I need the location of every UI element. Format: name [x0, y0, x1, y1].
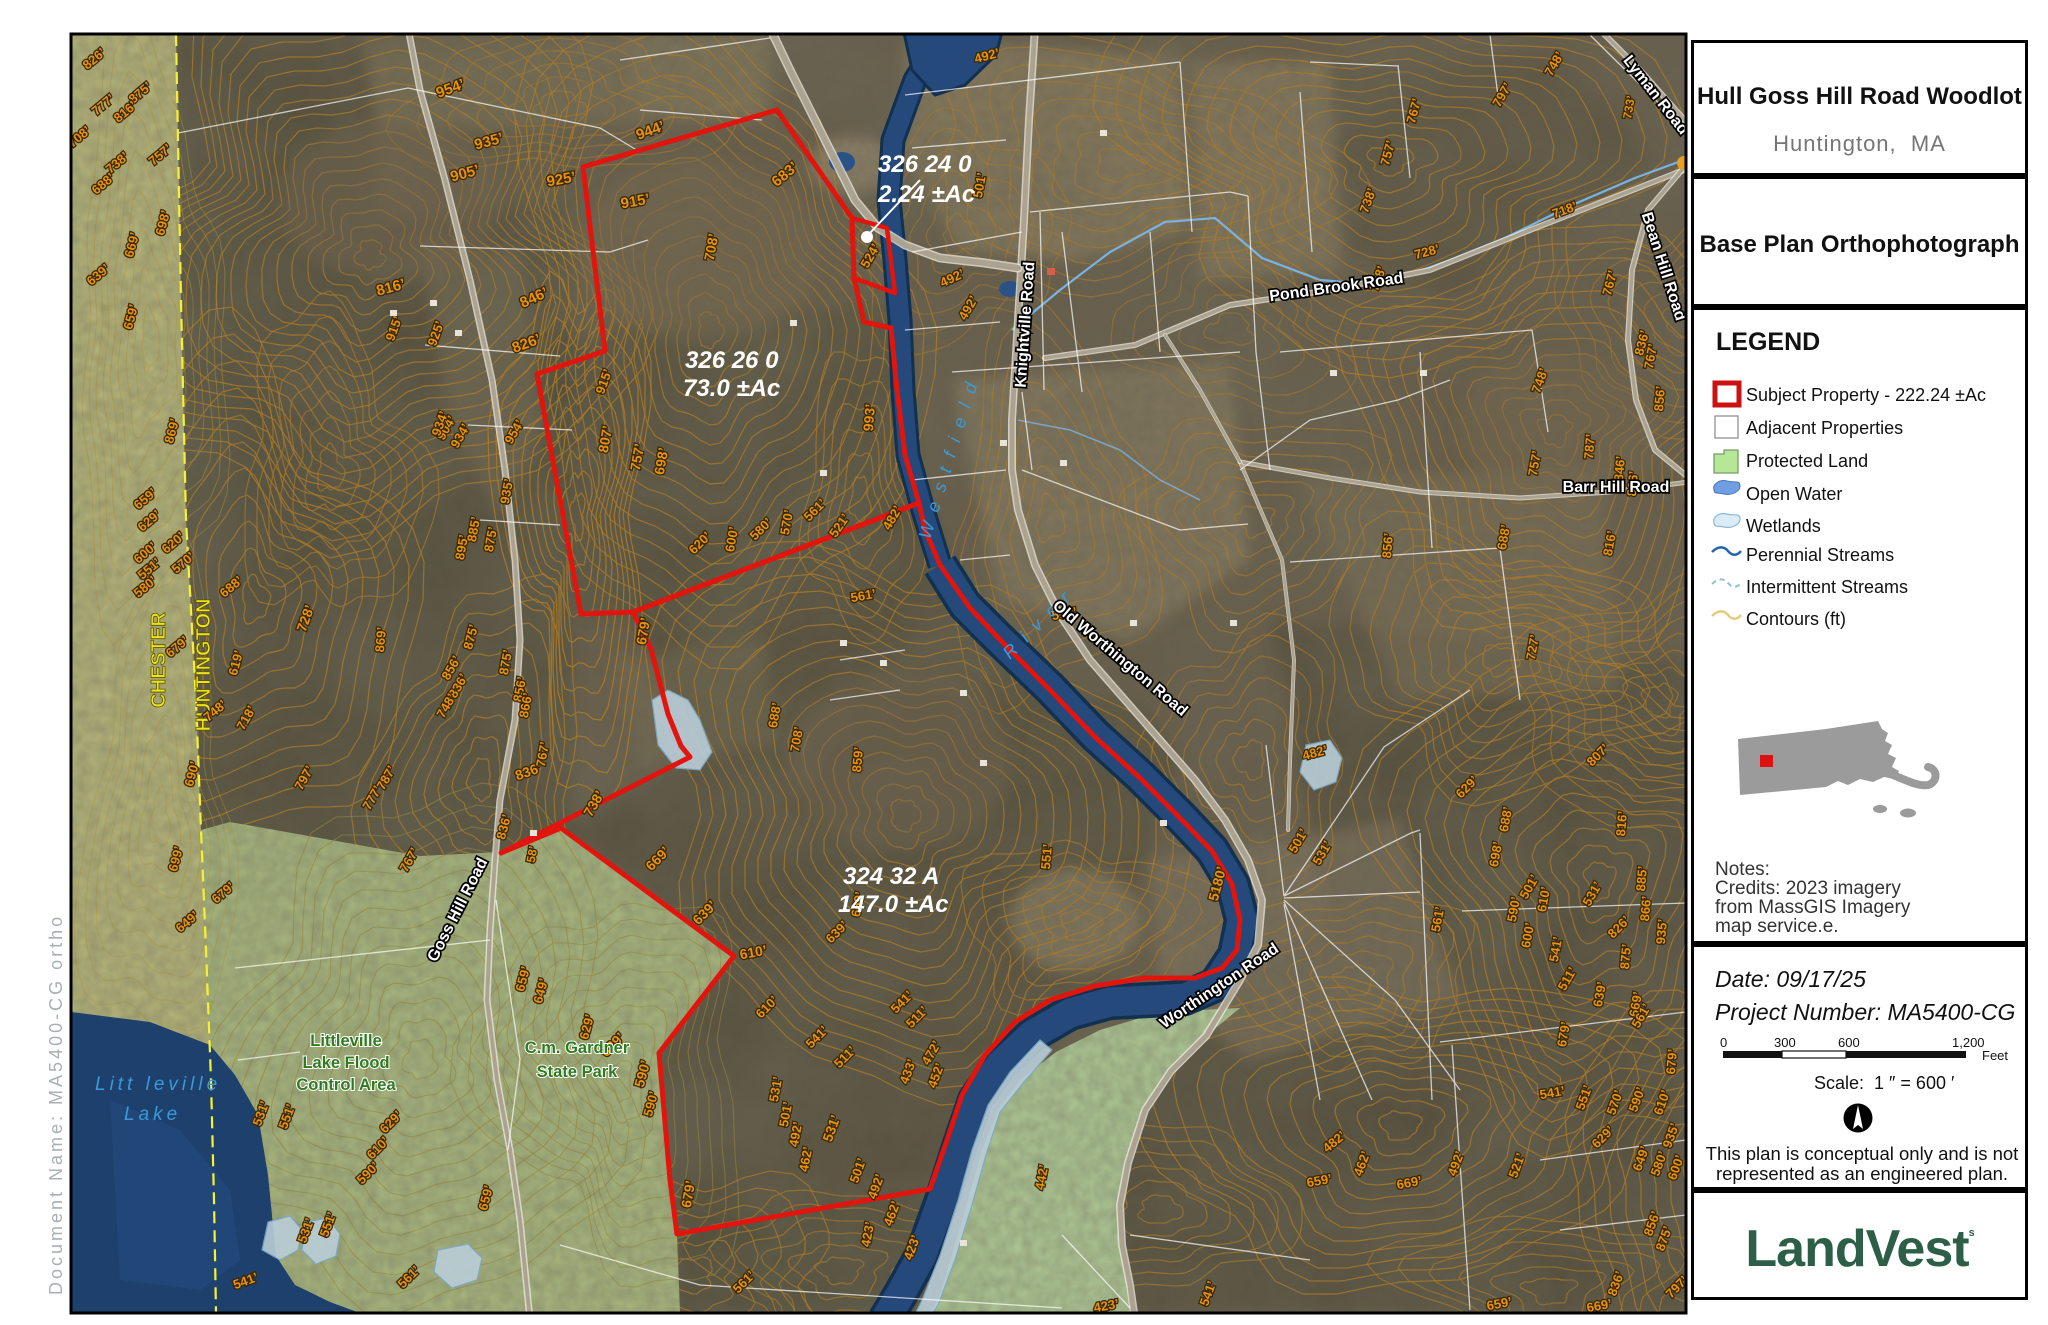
svg-text:859’: 859’: [849, 746, 866, 773]
svg-text:Notes:: Notes:: [1715, 859, 1770, 880]
svg-text:856’: 856’: [1651, 385, 1668, 412]
svg-text:Intermittent Streams: Intermittent Streams: [1746, 577, 1908, 597]
svg-text:816’: 816’: [1613, 810, 1630, 837]
svg-text:Perennial Streams: Perennial Streams: [1746, 545, 1894, 565]
svg-text:679’: 679’: [1663, 1048, 1680, 1075]
svg-text:551’: 551’: [1038, 843, 1055, 870]
svg-text:Protected Land: Protected Land: [1746, 451, 1868, 471]
svg-text:147.0 ±Ac: 147.0 ±Ac: [838, 891, 949, 918]
svg-text:Litt leville: Litt leville: [95, 1074, 221, 1095]
svg-text:C.m. Gardner: C.m. Gardner: [525, 1039, 630, 1057]
svg-text:Wetlands: Wetlands: [1746, 516, 1821, 536]
svg-text:0: 0: [1720, 1035, 1727, 1050]
svg-text:Date: 09/17/25: Date: 09/17/25: [1715, 966, 1866, 992]
svg-text:Subject Property - 222.24 ±Ac: Subject Property - 222.24 ±Ac: [1746, 385, 1986, 405]
svg-text:Open Water: Open Water: [1746, 484, 1842, 504]
svg-text:600: 600: [1838, 1035, 1860, 1050]
svg-text:CHESTER: CHESTER: [148, 612, 170, 708]
svg-text:Littleville: Littleville: [310, 1032, 382, 1050]
svg-text:Scale: 1 ″ = 600 ′: Scale: 1 ″ = 600 ′: [1814, 1073, 1955, 1093]
svg-text:324 32 A: 324 32 A: [843, 863, 940, 890]
svg-text:869’: 869’: [372, 626, 389, 653]
svg-text:1,200: 1,200: [1952, 1035, 1985, 1050]
svg-text:875’: 875’: [1617, 943, 1634, 970]
svg-text:represented as an engineered p: represented as an engineered plan.: [1716, 1163, 2008, 1184]
svg-text:This plan is conceptual only a: This plan is conceptual only and is not: [1706, 1143, 2019, 1164]
svg-text:Feet: Feet: [1982, 1048, 2008, 1063]
svg-text:885’: 885’: [1633, 865, 1650, 892]
svg-text:993’: 993’: [860, 403, 878, 432]
svg-text:787’: 787’: [1581, 433, 1598, 460]
svg-text:map service.e.: map service.e.: [1715, 916, 1839, 937]
svg-text:866’: 866’: [1637, 895, 1654, 922]
svg-text:Project Number: MA5400-CG: Project Number: MA5400-CG: [1715, 999, 2015, 1025]
svg-text:300: 300: [1774, 1035, 1796, 1050]
svg-text:58’: 58’: [524, 845, 541, 864]
svg-text:Credits: 2023 imagery: Credits: 2023 imagery: [1715, 878, 1901, 899]
svg-text:Barr Hill Road: Barr Hill Road: [1563, 479, 1670, 496]
svg-text:326 24 0: 326 24 0: [878, 151, 972, 178]
svg-text:73.0 ±Ac: 73.0 ±Ac: [683, 375, 780, 402]
svg-text:935’: 935’: [1653, 918, 1670, 945]
svg-text:State Park: State Park: [537, 1063, 619, 1081]
svg-text:Lake Flood: Lake Flood: [302, 1054, 389, 1072]
svg-text:856’: 856’: [1379, 532, 1396, 559]
svg-text:326 26 0: 326 26 0: [685, 347, 779, 374]
svg-text:2.24 ±Ac: 2.24 ±Ac: [877, 181, 975, 208]
svg-text:Adjacent Properties: Adjacent Properties: [1746, 418, 1903, 438]
svg-text:Contours (ft): Contours (ft): [1746, 609, 1846, 629]
svg-text:Control Area: Control Area: [296, 1076, 396, 1094]
svg-text:Lake: Lake: [124, 1104, 181, 1125]
svg-text:from MassGIS Imagery: from MassGIS Imagery: [1715, 897, 1911, 918]
